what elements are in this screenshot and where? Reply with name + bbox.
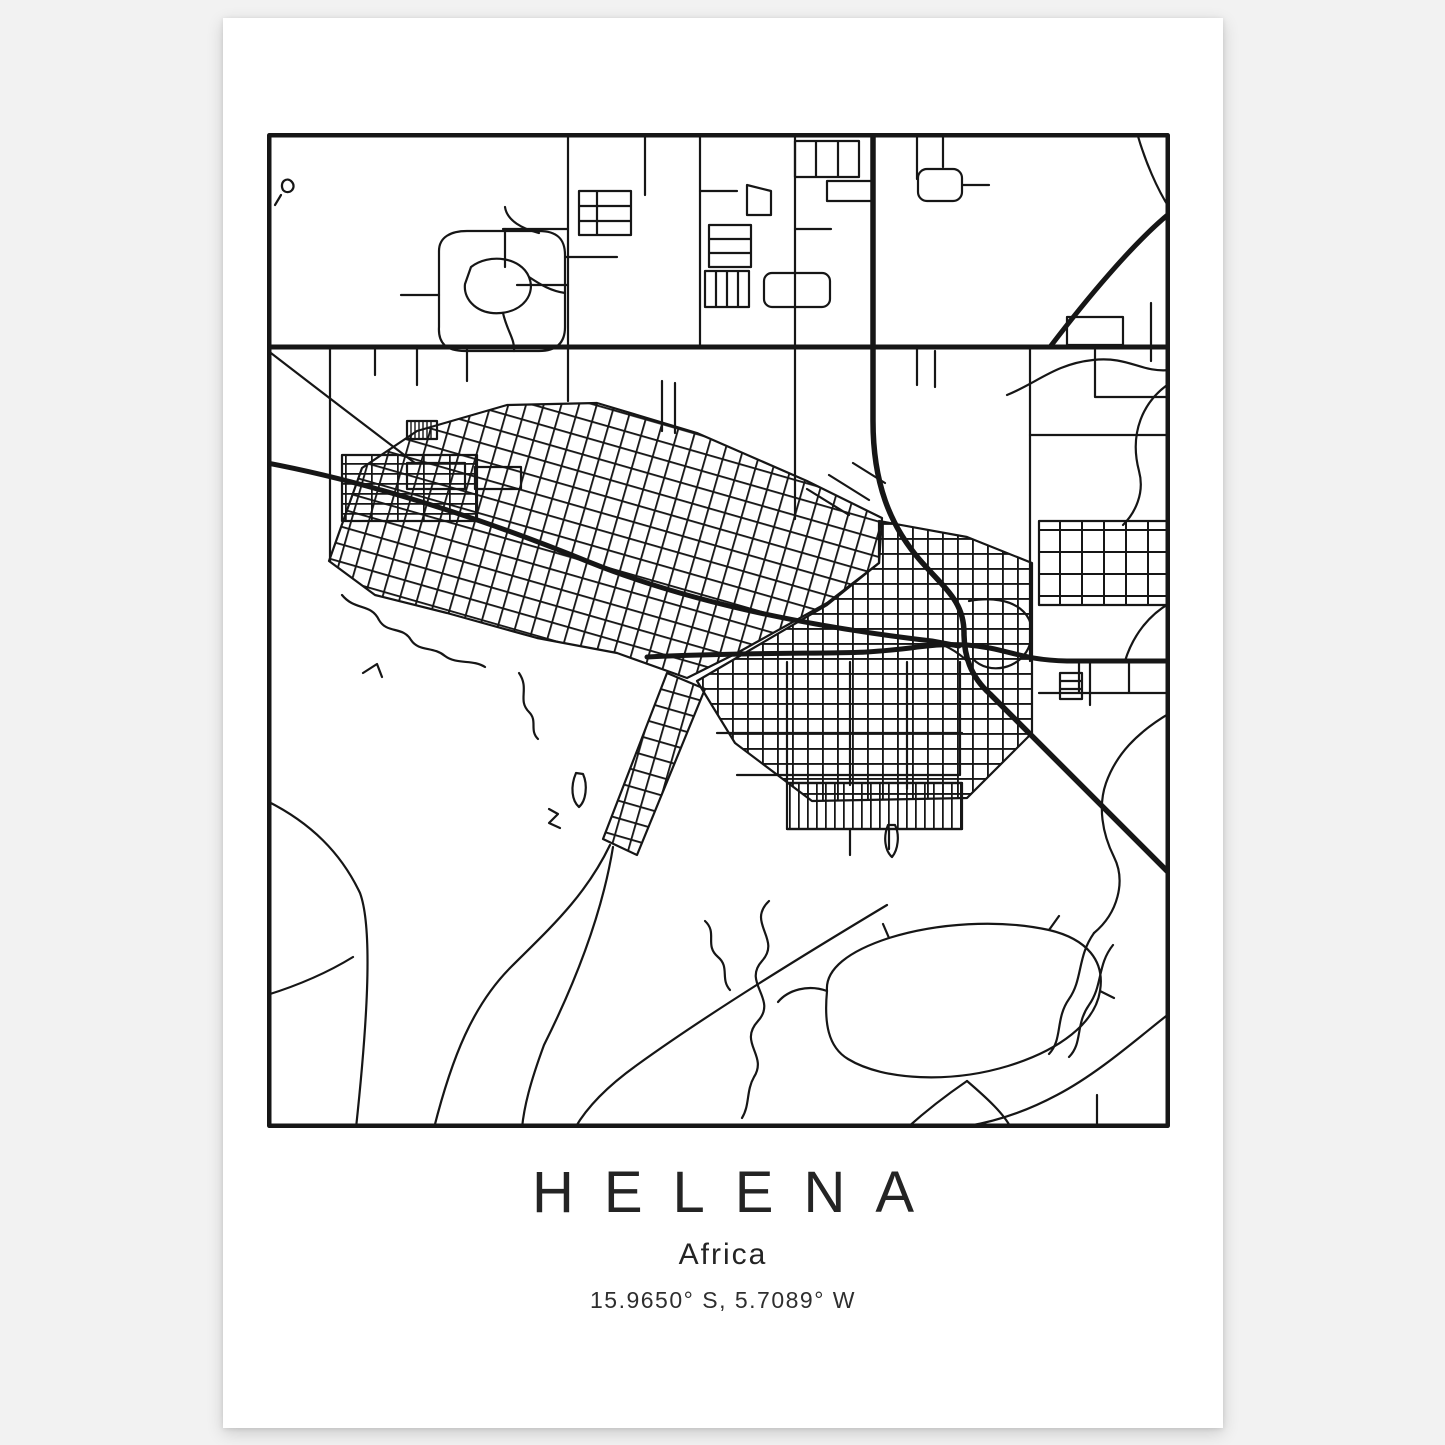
northwest-feeder-road xyxy=(267,350,415,463)
teardrop-road xyxy=(275,180,294,205)
poster-caption: HELENA Africa 15.9650° S, 5.7089° W xyxy=(223,1163,1223,1314)
gulch-tail-grid xyxy=(603,673,705,855)
campus-loop xyxy=(439,231,565,351)
south-comb-grid xyxy=(787,783,962,829)
city-title: HELENA xyxy=(223,1163,1223,1224)
region-subtitle: Africa xyxy=(223,1238,1223,1272)
map-svg xyxy=(267,133,1170,1128)
right-side-grid xyxy=(1039,521,1170,605)
street-grids xyxy=(329,403,1170,855)
street-map-figure xyxy=(267,133,1170,1128)
screenshot-stage: HELENA Africa 15.9650° S, 5.7089° W xyxy=(0,0,1445,1445)
pond-loop xyxy=(572,773,585,807)
map-poster: HELENA Africa 15.9650° S, 5.7089° W xyxy=(223,18,1223,1428)
coordinates-label: 15.9650° S, 5.7089° W xyxy=(223,1287,1223,1314)
reservoir-loop-road xyxy=(826,924,1101,1078)
